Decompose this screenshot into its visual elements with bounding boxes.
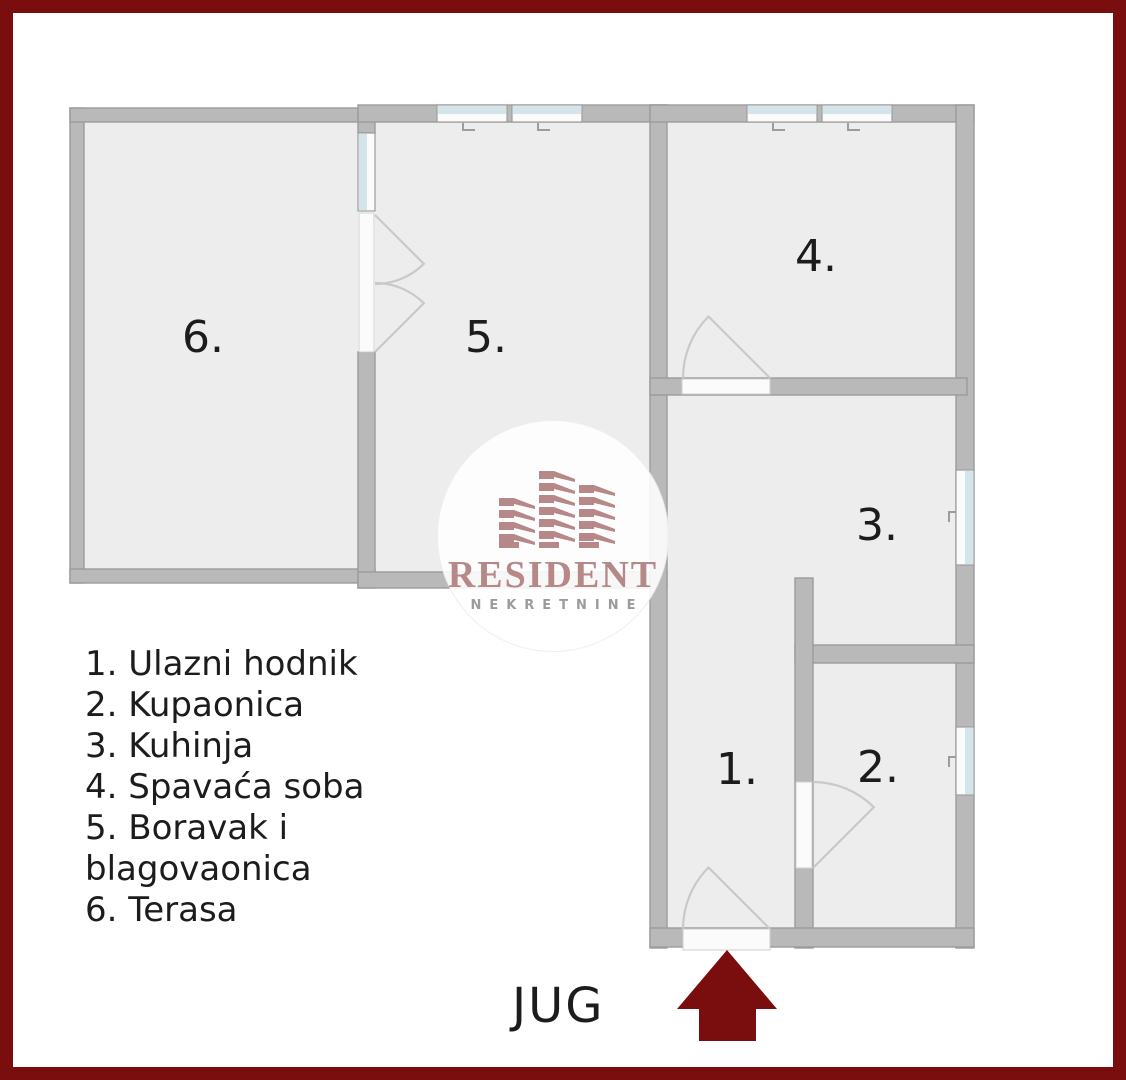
floor-plan-page: 6. 5. 4. 3. 1. 2. 1. Ulazni hodnik 2. Ku… xyxy=(0,0,1126,1080)
watermark-brand: RESIDENT xyxy=(438,553,668,597)
wall-terrace-left xyxy=(70,108,84,583)
legend-line-4: 4. Spavaća soba xyxy=(85,767,364,808)
window-bedroom-1 xyxy=(747,105,817,122)
room-label-kitchen: 3. xyxy=(856,500,898,551)
resident-buildings-icon xyxy=(493,465,617,549)
door-opening-terrace-living xyxy=(359,213,374,352)
door-opening-entrance xyxy=(683,929,770,950)
wall-hall-bathroom xyxy=(795,578,813,948)
legend-line-2: 2. Kupaonica xyxy=(85,685,364,726)
door-opening-bedroom xyxy=(682,379,770,394)
room-label-terrace: 6. xyxy=(182,312,224,363)
room-label-bedroom: 4. xyxy=(795,231,837,282)
legend: 1. Ulazni hodnik 2. Kupaonica 3. Kuhinja… xyxy=(85,644,364,931)
room-label-entry-hall: 1. xyxy=(716,744,758,795)
wall-terrace-top xyxy=(70,108,375,122)
window-living-2 xyxy=(512,105,582,122)
room-label-bathroom: 2. xyxy=(857,742,899,793)
window-kitchen xyxy=(956,470,974,565)
window-living-1 xyxy=(437,105,507,122)
legend-line-7: 6. Terasa xyxy=(85,890,364,931)
legend-line-1: 1. Ulazni hodnik xyxy=(85,644,364,685)
wall-kitchen-bathroom xyxy=(795,645,974,663)
window-terrace-wall xyxy=(358,133,375,211)
watermark: RESIDENT NEKRETNINE xyxy=(437,420,669,652)
legend-line-6: blagovaonica xyxy=(85,849,364,890)
wall-terrace-living-lower xyxy=(358,352,375,588)
wall-terrace-bottom xyxy=(70,569,375,583)
door-opening-bathroom xyxy=(796,782,812,868)
window-bathroom xyxy=(956,727,974,795)
compass-label: JUG xyxy=(512,978,604,1034)
room-label-living-dining: 5. xyxy=(465,312,507,363)
legend-line-3: 3. Kuhinja xyxy=(85,726,364,767)
watermark-subtitle: NEKRETNINE xyxy=(446,598,668,613)
south-arrow-icon xyxy=(677,950,777,1041)
legend-line-5: 5. Boravak i xyxy=(85,808,364,849)
window-bedroom-2 xyxy=(822,105,892,122)
